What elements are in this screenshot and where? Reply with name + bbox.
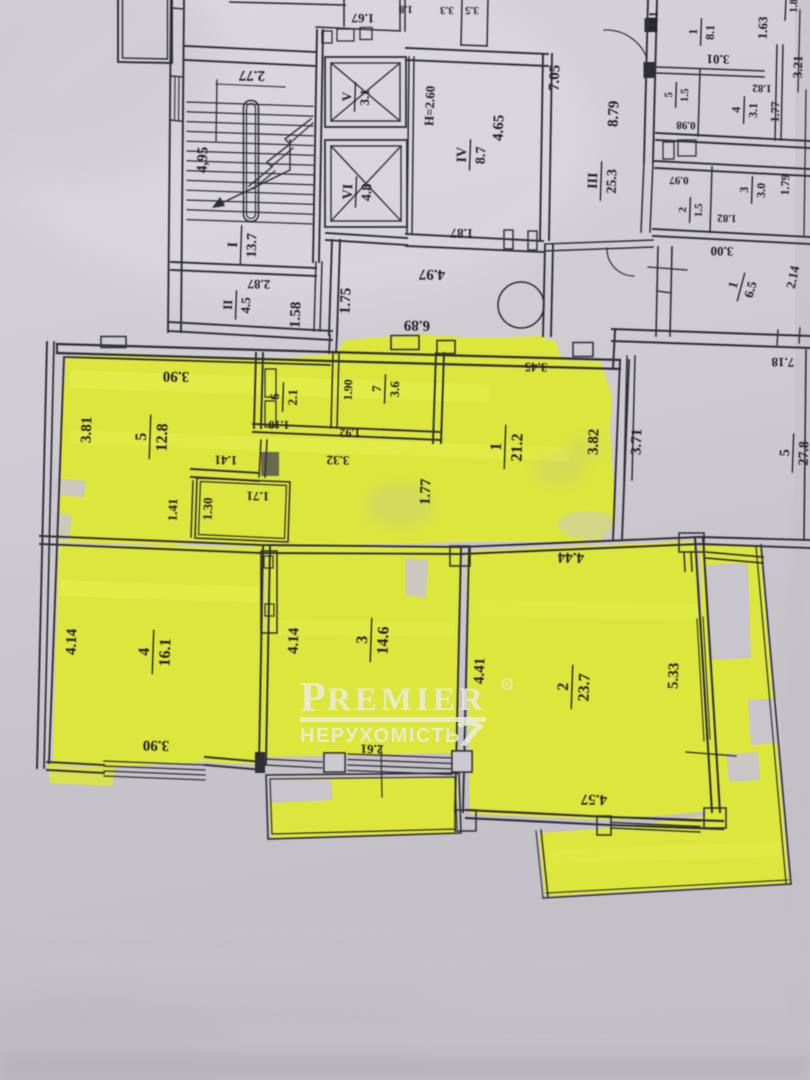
svg-text:1.67: 1.67 [351, 11, 375, 26]
svg-text:III: III [586, 172, 602, 189]
svg-text:0.98: 0.98 [676, 119, 696, 131]
svg-text:2.77: 2.77 [238, 67, 265, 83]
svg-text:1.82: 1.82 [752, 82, 772, 94]
svg-text:H=2.60: H=2.60 [421, 85, 437, 126]
svg-text:8.79: 8.79 [606, 100, 623, 127]
svg-text:3: 3 [737, 186, 751, 192]
svg-text:3.3: 3.3 [439, 4, 453, 16]
svg-text:5: 5 [133, 432, 150, 441]
svg-text:3.6: 3.6 [387, 380, 403, 397]
svg-text:27.8: 27.8 [797, 441, 810, 466]
svg-text:1.8: 1.8 [788, 0, 800, 13]
svg-text:4.8: 4.8 [360, 183, 376, 201]
svg-text:V: V [339, 91, 354, 102]
svg-text:8.7: 8.7 [474, 146, 490, 164]
svg-text:1.10: 1.10 [268, 418, 289, 432]
svg-text:4.14: 4.14 [64, 628, 81, 655]
svg-text:R: R [505, 681, 510, 689]
svg-text:8.1: 8.1 [703, 25, 718, 40]
svg-text:3.01: 3.01 [706, 52, 729, 67]
svg-text:2.81: 2.81 [646, 11, 661, 32]
svg-text:6: 6 [267, 393, 282, 401]
svg-text:3.90: 3.90 [163, 368, 190, 384]
svg-text:II: II [220, 299, 235, 310]
svg-text:4.5: 4.5 [238, 296, 254, 313]
svg-text:3.00: 3.00 [710, 244, 733, 259]
svg-text:6.89: 6.89 [404, 317, 431, 333]
svg-text:12.8: 12.8 [154, 423, 172, 452]
svg-text:4.65: 4.65 [491, 114, 508, 141]
svg-text:1.5: 1.5 [679, 88, 691, 103]
svg-text:2.87: 2.87 [247, 277, 271, 292]
svg-text:3.5: 3.5 [464, 4, 478, 16]
svg-text:1.90: 1.90 [341, 379, 356, 400]
svg-text:1.41: 1.41 [165, 498, 181, 521]
svg-text:5.33: 5.33 [666, 662, 683, 689]
svg-text:REMIER: REMIER [327, 682, 487, 718]
svg-text:1.79: 1.79 [778, 174, 793, 195]
svg-text:3.32: 3.32 [326, 453, 349, 468]
svg-text:2: 2 [677, 206, 689, 212]
svg-text:1.8: 1.8 [398, 3, 412, 15]
svg-text:3.71: 3.71 [629, 428, 646, 455]
svg-text:IV: IV [455, 147, 471, 163]
svg-text:2: 2 [555, 682, 572, 691]
svg-text:3.0: 3.0 [754, 183, 769, 198]
svg-text:1.41: 1.41 [214, 453, 237, 468]
svg-text:5: 5 [663, 91, 675, 97]
svg-text:14.6: 14.6 [375, 626, 393, 655]
svg-text:4,95: 4,95 [195, 146, 212, 173]
svg-text:1.71: 1.71 [246, 489, 269, 504]
svg-text:0.97: 0.97 [669, 174, 689, 186]
svg-text:13.7: 13.7 [245, 233, 261, 258]
svg-text:P: P [300, 675, 326, 721]
svg-text:1.75: 1.75 [338, 287, 355, 314]
svg-text:4.57: 4.57 [580, 791, 607, 807]
svg-text:7.05: 7.05 [547, 64, 564, 91]
svg-text:4: 4 [729, 106, 743, 112]
svg-text:3.82: 3.82 [586, 428, 603, 455]
svg-text:21.2: 21.2 [509, 433, 527, 462]
svg-text:1.87: 1.87 [450, 226, 474, 241]
svg-text:1.58: 1.58 [288, 301, 305, 328]
svg-text:3.1: 3.1 [746, 103, 761, 118]
svg-text:4.14: 4.14 [286, 627, 303, 654]
svg-text:1.77: 1.77 [418, 478, 435, 505]
svg-text:3.90: 3.90 [143, 737, 170, 753]
svg-text:4.97: 4.97 [418, 266, 445, 282]
svg-text:1: 1 [488, 442, 505, 451]
svg-text:1.82: 1.82 [717, 212, 737, 224]
svg-text:3.1: 3.1 [357, 89, 373, 106]
svg-text:1: 1 [686, 28, 700, 34]
svg-text:3.81: 3.81 [79, 416, 96, 443]
svg-text:16.1: 16.1 [157, 638, 175, 667]
svg-text:I: I [226, 242, 241, 248]
svg-text:1.63: 1.63 [755, 16, 771, 40]
svg-text:5: 5 [778, 449, 793, 457]
svg-text:3.45: 3.45 [524, 360, 548, 375]
svg-text:НЕРУХОМІСТЬ: НЕРУХОМІСТЬ [300, 725, 461, 747]
svg-text:1.77: 1.77 [768, 101, 783, 122]
svg-text:1.92: 1.92 [339, 426, 360, 440]
svg-text:23.7: 23.7 [576, 673, 594, 702]
svg-text:4.44: 4.44 [557, 549, 584, 565]
svg-text:4: 4 [136, 647, 153, 656]
svg-text:2.1: 2.1 [285, 389, 301, 406]
svg-text:VI: VI [341, 184, 357, 200]
svg-text:3.21: 3.21 [790, 55, 806, 78]
svg-text:4.41: 4.41 [472, 657, 489, 684]
svg-text:25.3: 25.3 [605, 169, 621, 194]
svg-text:7.18: 7.18 [771, 355, 795, 370]
svg-text:1.5: 1.5 [693, 203, 705, 218]
svg-text:1.30: 1.30 [200, 497, 216, 520]
svg-text:7: 7 [369, 385, 384, 393]
svg-text:3: 3 [354, 635, 371, 644]
